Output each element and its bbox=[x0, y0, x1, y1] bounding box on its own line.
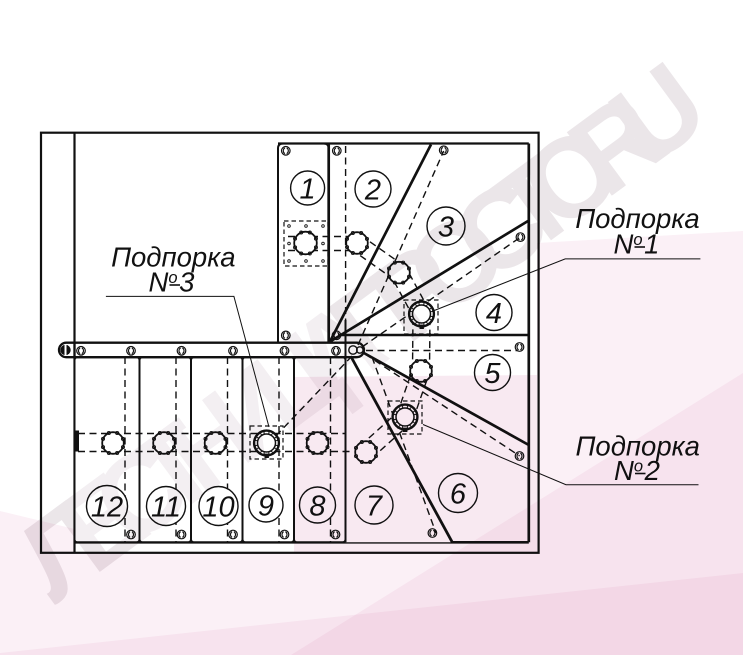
svg-text:1: 1 bbox=[300, 173, 316, 205]
svg-text:Подпорка: Подпорка bbox=[111, 242, 235, 273]
svg-text:9: 9 bbox=[258, 490, 274, 522]
svg-text:2: 2 bbox=[364, 174, 381, 206]
